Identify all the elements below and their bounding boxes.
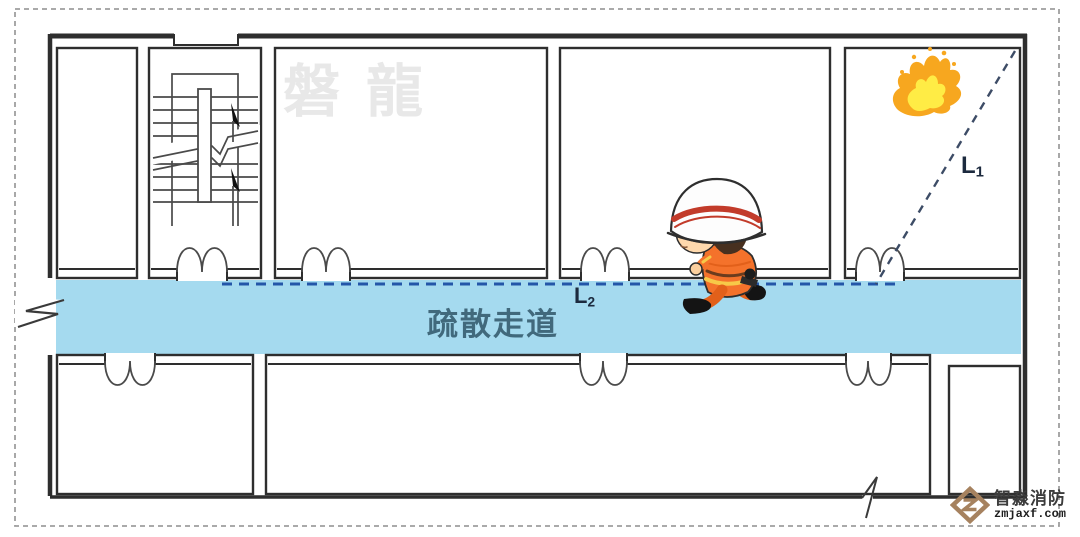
distance-label-l2: L2	[574, 283, 595, 309]
watermark-text: 磐龍	[283, 46, 449, 128]
distance-label-l1: L1	[961, 152, 984, 181]
brand-company-name: 智淼消防	[994, 490, 1066, 508]
room-top-1	[57, 48, 137, 278]
zm-diamond-logo	[950, 486, 990, 524]
rear-glove	[745, 269, 756, 280]
l1-base: L	[961, 152, 976, 179]
room-bottom-2	[266, 355, 930, 494]
l2-base: L	[574, 283, 587, 308]
floorplan-drawing	[0, 0, 1080, 537]
room-bottom-1	[57, 355, 253, 494]
evacuation-corridor-diagram: 磐龍 疏散走道 L1 L2 智淼消防 zmjaxf.com	[0, 0, 1080, 537]
stairwell-top-notch	[174, 34, 238, 46]
room-bottom-3	[949, 366, 1020, 494]
brand-logo-block: 智淼消防 zmjaxf.com	[950, 486, 1066, 524]
l2-subscript: 2	[587, 294, 595, 309]
brand-website: zmjaxf.com	[994, 508, 1066, 521]
l1-subscript: 1	[976, 165, 984, 181]
front-hand	[690, 263, 702, 275]
corridor-label: 疏散走道	[427, 299, 559, 344]
